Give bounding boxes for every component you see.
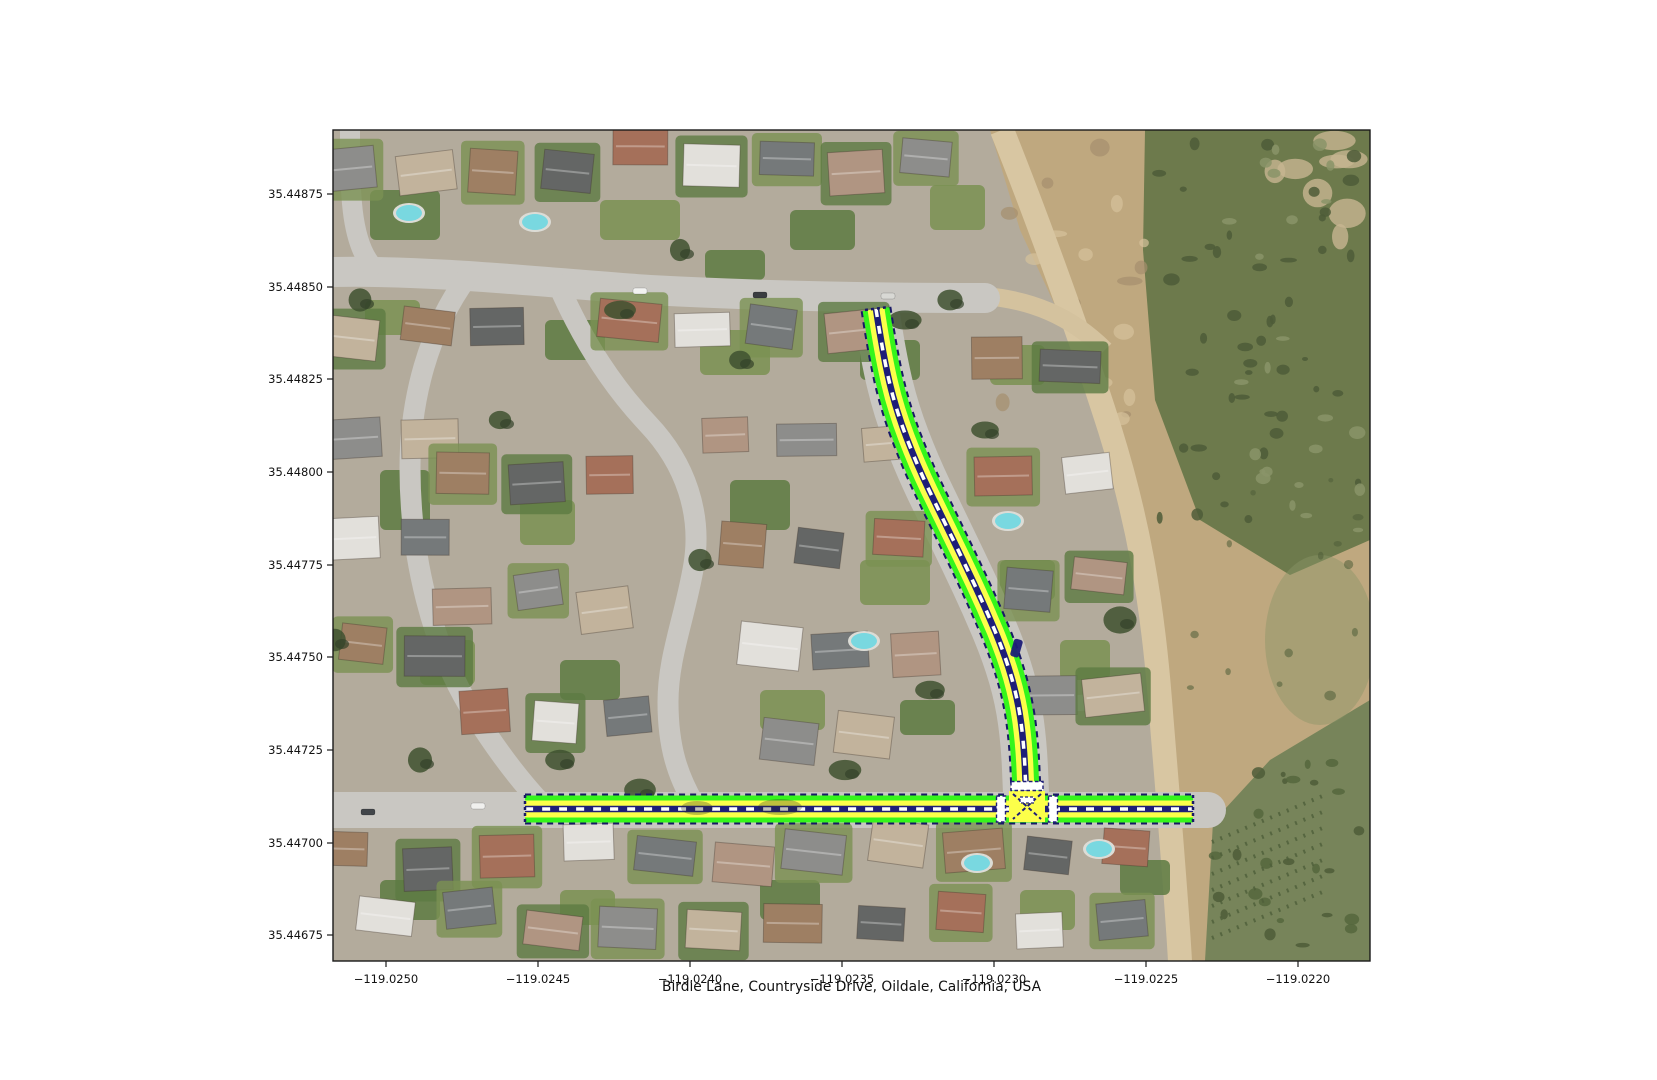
scrub-dot: [1225, 668, 1230, 675]
house: [613, 128, 668, 165]
lawn-patch: [930, 185, 985, 230]
y-tick-label: 35.44800: [268, 465, 323, 479]
car: [471, 803, 485, 809]
plot-image: 35.4487535.4485035.4482535.4480035.44775…: [0, 0, 1657, 1080]
scrub-bush: [1252, 767, 1265, 779]
house: [763, 904, 822, 944]
scrub-dot: [1187, 685, 1194, 690]
house: [1062, 452, 1114, 494]
house: [685, 909, 742, 950]
scrub-bush: [1255, 253, 1264, 259]
scrub-bush: [1326, 160, 1334, 170]
scrub-bush: [1233, 849, 1242, 861]
roof-ridge: [678, 329, 727, 330]
y-tick-label: 35.44850: [268, 280, 323, 294]
roof-ridge: [977, 476, 1029, 477]
tree: [500, 419, 514, 429]
lawn-patch: [860, 560, 930, 605]
scrub-bush: [1179, 443, 1188, 452]
y-tick-label: 35.44725: [268, 743, 323, 757]
scrub-bush: [1212, 472, 1220, 480]
scrub-bush: [1244, 515, 1252, 523]
house: [868, 817, 929, 868]
scrub-bush: [1272, 144, 1280, 154]
roof-ridge: [439, 473, 486, 474]
scrub-bush: [1253, 809, 1263, 819]
tree: [930, 689, 944, 699]
scrub-bush: [1276, 336, 1290, 341]
tree: [700, 559, 714, 569]
scrub-bush: [1252, 263, 1267, 271]
scrub-bush: [1347, 250, 1355, 263]
roof-ridge: [436, 606, 489, 607]
scrub-dot: [1190, 631, 1198, 639]
tree-shade-on-road: [681, 801, 713, 815]
scrub-bush: [1265, 362, 1271, 374]
scrub-bush: [1313, 386, 1319, 392]
scrub-bush: [1186, 369, 1199, 376]
scrub-dot: [1284, 649, 1292, 658]
scrub-bush: [1276, 411, 1288, 422]
y-tick-label: 35.44825: [268, 372, 323, 386]
y-tick-label: 35.44775: [268, 558, 323, 572]
sand-mottle: [1114, 324, 1134, 340]
car: [753, 292, 767, 298]
house: [470, 307, 524, 345]
scrub-bush: [1152, 170, 1166, 177]
house: [718, 521, 766, 568]
scrub-bush: [1277, 365, 1290, 375]
scrub-bush: [1243, 359, 1257, 368]
house: [329, 516, 380, 560]
scrub-bush: [1259, 897, 1271, 906]
pool: [964, 855, 990, 871]
scrub-bush: [1354, 826, 1365, 835]
house: [974, 456, 1032, 496]
scrub-bush: [1347, 150, 1361, 162]
house: [432, 588, 492, 626]
scrub-bush: [1277, 918, 1284, 923]
tree-shade-on-road: [758, 799, 802, 815]
scrub-bush: [1294, 482, 1303, 488]
tree: [905, 319, 919, 329]
lawn-patch: [705, 250, 765, 280]
scrub-bush: [1200, 333, 1207, 344]
tree: [420, 759, 434, 769]
pool: [851, 633, 877, 649]
tree: [740, 359, 754, 369]
house: [873, 518, 925, 557]
scrub-bush: [1227, 310, 1241, 321]
house: [1096, 899, 1148, 940]
house: [971, 337, 1022, 380]
scrub-dot: [1344, 560, 1353, 569]
scrub-bush: [1157, 512, 1163, 524]
house: [1015, 912, 1063, 949]
map-figure: 35.4487535.4485035.4482535.4480035.44775…: [0, 0, 1657, 1080]
house: [857, 905, 906, 941]
roof-ridge: [780, 440, 834, 441]
house: [598, 906, 658, 949]
roof-ridge: [326, 848, 365, 849]
scrub-bush: [1260, 158, 1272, 168]
scrub-bush: [1343, 175, 1360, 186]
scrub-bush: [1234, 379, 1248, 385]
house: [737, 621, 803, 671]
sand-patch: [1329, 199, 1366, 228]
scrub-bush: [1344, 914, 1359, 925]
roof-ridge: [686, 165, 736, 166]
scrub-bush: [1245, 370, 1253, 375]
scrub-bush: [1261, 467, 1272, 477]
house: [468, 148, 518, 195]
scrub-bush: [1280, 258, 1297, 263]
tree: [560, 759, 574, 769]
scrub-bush: [1205, 244, 1216, 250]
house: [513, 569, 563, 610]
scrub-bush: [1305, 760, 1311, 769]
house: [443, 887, 497, 929]
pool: [396, 205, 422, 221]
tree: [845, 769, 859, 779]
house: [400, 306, 455, 346]
sand-mottle: [996, 393, 1010, 411]
y-tick-label: 35.44875: [268, 187, 323, 201]
scrub-bush: [1213, 892, 1225, 902]
scrub-bush: [1318, 414, 1333, 421]
scrub-bush: [1256, 336, 1266, 346]
scrub-bush: [1227, 230, 1233, 239]
scrub-bush: [1309, 444, 1323, 453]
house: [563, 823, 614, 861]
house: [541, 149, 595, 193]
tree: [1120, 619, 1134, 629]
scrub-dot: [1352, 628, 1358, 637]
scrub-bush: [1163, 273, 1180, 285]
sand-mottle: [1042, 177, 1054, 188]
scrub-bush: [1286, 215, 1298, 224]
sand-mottle: [1111, 195, 1123, 212]
house: [891, 631, 941, 677]
scrub-bush: [1181, 256, 1197, 262]
scrub-dot: [1324, 691, 1336, 701]
y-tick-label: 35.44750: [268, 650, 323, 664]
scrub-bush: [1326, 759, 1339, 767]
scrub-bush: [1286, 776, 1301, 784]
scrub-bush: [1281, 772, 1286, 777]
tree: [1103, 606, 1136, 633]
sand-mottle: [1117, 277, 1143, 286]
scrub-bush: [1318, 246, 1327, 254]
scrub-bush: [1324, 868, 1334, 873]
car: [633, 288, 647, 294]
house: [322, 831, 368, 866]
scrub-bush: [1322, 913, 1333, 917]
lawn-patch: [600, 200, 680, 240]
scrub-bush: [1285, 297, 1293, 307]
scrub-dot: [1227, 540, 1232, 547]
house: [1082, 673, 1145, 717]
roof-ridge: [404, 438, 455, 439]
scrub-bush: [1353, 528, 1363, 533]
house: [781, 829, 847, 875]
house: [683, 144, 740, 188]
scrub-bush: [1313, 138, 1327, 151]
car: [361, 809, 375, 815]
roof-ridge: [473, 326, 521, 327]
house: [576, 586, 633, 635]
tree: [360, 299, 374, 309]
scrub-bush: [1296, 943, 1310, 948]
house: [759, 141, 814, 176]
scrub-bush: [1249, 448, 1261, 460]
house: [634, 836, 697, 877]
y-tick-label: 35.44700: [268, 836, 323, 850]
house: [603, 696, 652, 737]
sand-mottle: [1078, 248, 1092, 261]
pool: [1086, 841, 1112, 857]
scrub-soft-patch: [1265, 555, 1375, 725]
scrub-bush: [1309, 187, 1320, 197]
house: [479, 834, 535, 878]
house: [436, 452, 489, 494]
scrub-bush: [1321, 199, 1331, 204]
house: [674, 312, 730, 347]
house: [508, 462, 565, 505]
house: [1071, 557, 1127, 595]
scrub-bush: [1310, 780, 1319, 786]
house: [404, 636, 465, 677]
house: [900, 138, 953, 177]
scrub-bush: [1220, 501, 1229, 507]
roof-ridge: [483, 856, 531, 857]
scrub-dot: [1250, 490, 1255, 496]
house: [326, 417, 383, 460]
sand-mottle: [1139, 239, 1149, 248]
stop-bar: [997, 796, 1006, 822]
sand-mottle: [1001, 207, 1018, 220]
stop-bar: [1049, 796, 1058, 822]
stop-bar: [1011, 782, 1043, 791]
house: [459, 688, 510, 734]
roof-ridge: [589, 475, 630, 476]
scrub-bush: [1320, 207, 1331, 216]
scrub-bush: [1234, 395, 1249, 400]
scrub-bush: [1354, 483, 1365, 496]
house: [395, 150, 457, 196]
sand-mottle: [1090, 139, 1110, 157]
scrub-dot: [1277, 681, 1283, 687]
scrub-dot: [1334, 541, 1342, 547]
scrub-bush: [1345, 924, 1357, 933]
house: [586, 456, 633, 495]
house: [712, 842, 775, 887]
house: [1024, 836, 1073, 875]
tree: [335, 639, 349, 649]
intersection-marking: [1020, 797, 1034, 803]
tree: [950, 299, 964, 309]
pool: [522, 214, 548, 230]
roof-ridge: [567, 841, 611, 842]
scrub-bush: [1237, 343, 1253, 352]
scrub-bush: [1180, 187, 1187, 192]
pool: [995, 513, 1021, 529]
house: [523, 910, 583, 951]
sand-mottle: [1135, 261, 1148, 275]
scrub-bush: [1332, 390, 1343, 397]
scrub-bush: [1229, 393, 1236, 403]
scrub-bush: [1349, 426, 1365, 439]
scrub-bush: [1190, 137, 1200, 150]
roof-ridge: [767, 923, 819, 924]
car: [881, 293, 895, 299]
house: [833, 710, 894, 759]
satellite-scene: [316, 128, 1375, 961]
scrub-bush: [1332, 788, 1345, 794]
scrub-bush: [1191, 444, 1207, 451]
house: [827, 149, 884, 196]
house: [759, 717, 819, 765]
house: [936, 891, 986, 932]
scrub-dot: [1353, 514, 1364, 520]
house: [356, 896, 416, 936]
tree: [680, 249, 694, 259]
sand-mottle: [1124, 389, 1136, 406]
scrub-bush: [1270, 314, 1276, 324]
y-tick-label: 35.44675: [268, 928, 323, 942]
scrub-bush: [1302, 357, 1308, 361]
house: [532, 700, 579, 743]
scrub-bush: [1270, 428, 1284, 439]
house: [794, 527, 844, 568]
scrub-dot: [1328, 478, 1333, 482]
scrub-bush: [1264, 928, 1275, 940]
scrub-bush: [1191, 508, 1203, 520]
lawn-patch: [790, 210, 855, 250]
house: [1039, 349, 1101, 383]
house: [776, 423, 836, 456]
scrub-bush: [1289, 500, 1295, 511]
house: [1004, 567, 1054, 612]
lawn-patch: [900, 700, 955, 735]
house: [322, 145, 377, 192]
tree: [620, 309, 634, 319]
house: [745, 304, 797, 350]
house: [702, 417, 749, 453]
scrub-bush: [1268, 169, 1281, 178]
scrub-dot: [1318, 552, 1324, 560]
scrub-bush: [1222, 218, 1237, 225]
scrub-bush: [1300, 513, 1312, 518]
tree: [985, 429, 999, 439]
house: [401, 519, 449, 555]
figure-title: Birdie Lane, Countryside Drive, Oildale,…: [333, 979, 1370, 995]
scrub-bush: [1264, 411, 1278, 417]
